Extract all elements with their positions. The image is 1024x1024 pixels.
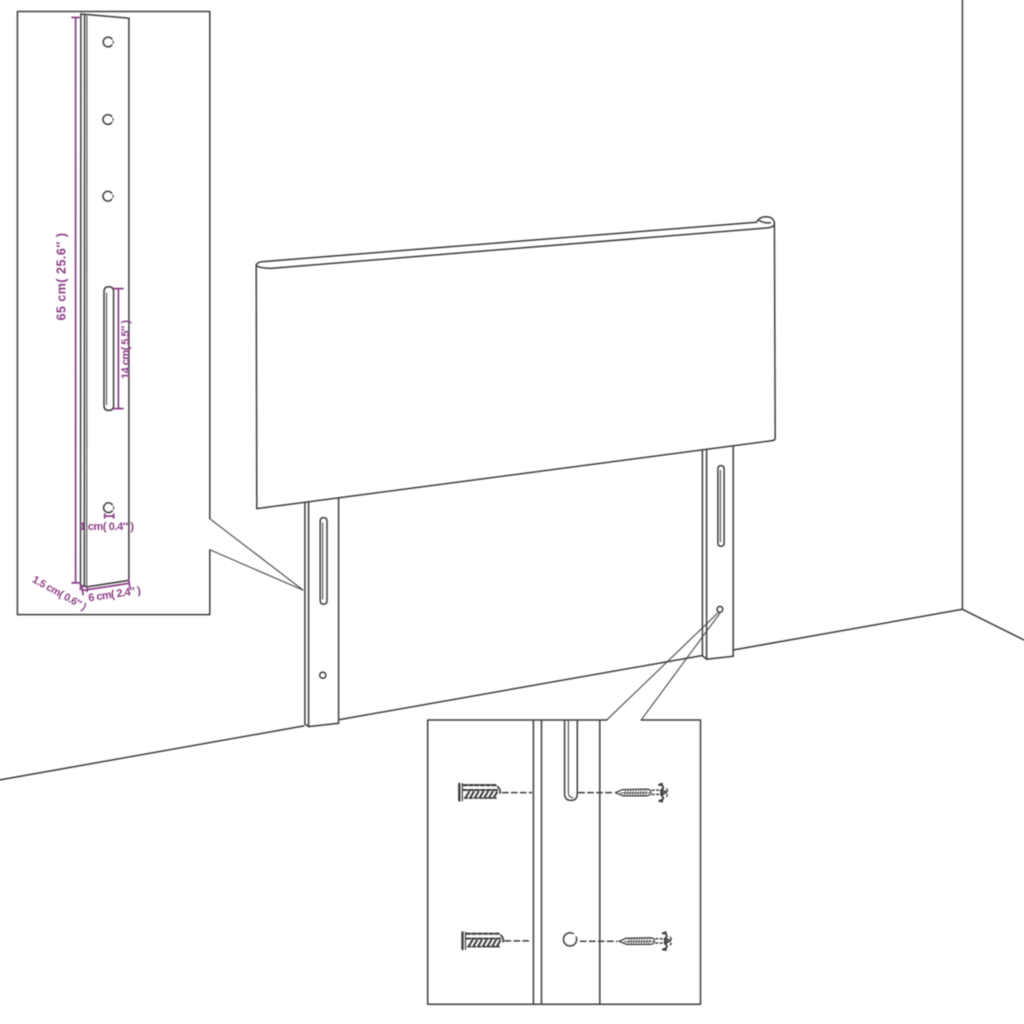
svg-text:65 cm( 25.6″ ): 65 cm( 25.6″ ) bbox=[55, 233, 69, 321]
svg-text:1 cm( 0.4″ ): 1 cm( 0.4″ ) bbox=[80, 521, 135, 533]
svg-text:14 cm( 5.5″ ): 14 cm( 5.5″ ) bbox=[120, 320, 132, 379]
